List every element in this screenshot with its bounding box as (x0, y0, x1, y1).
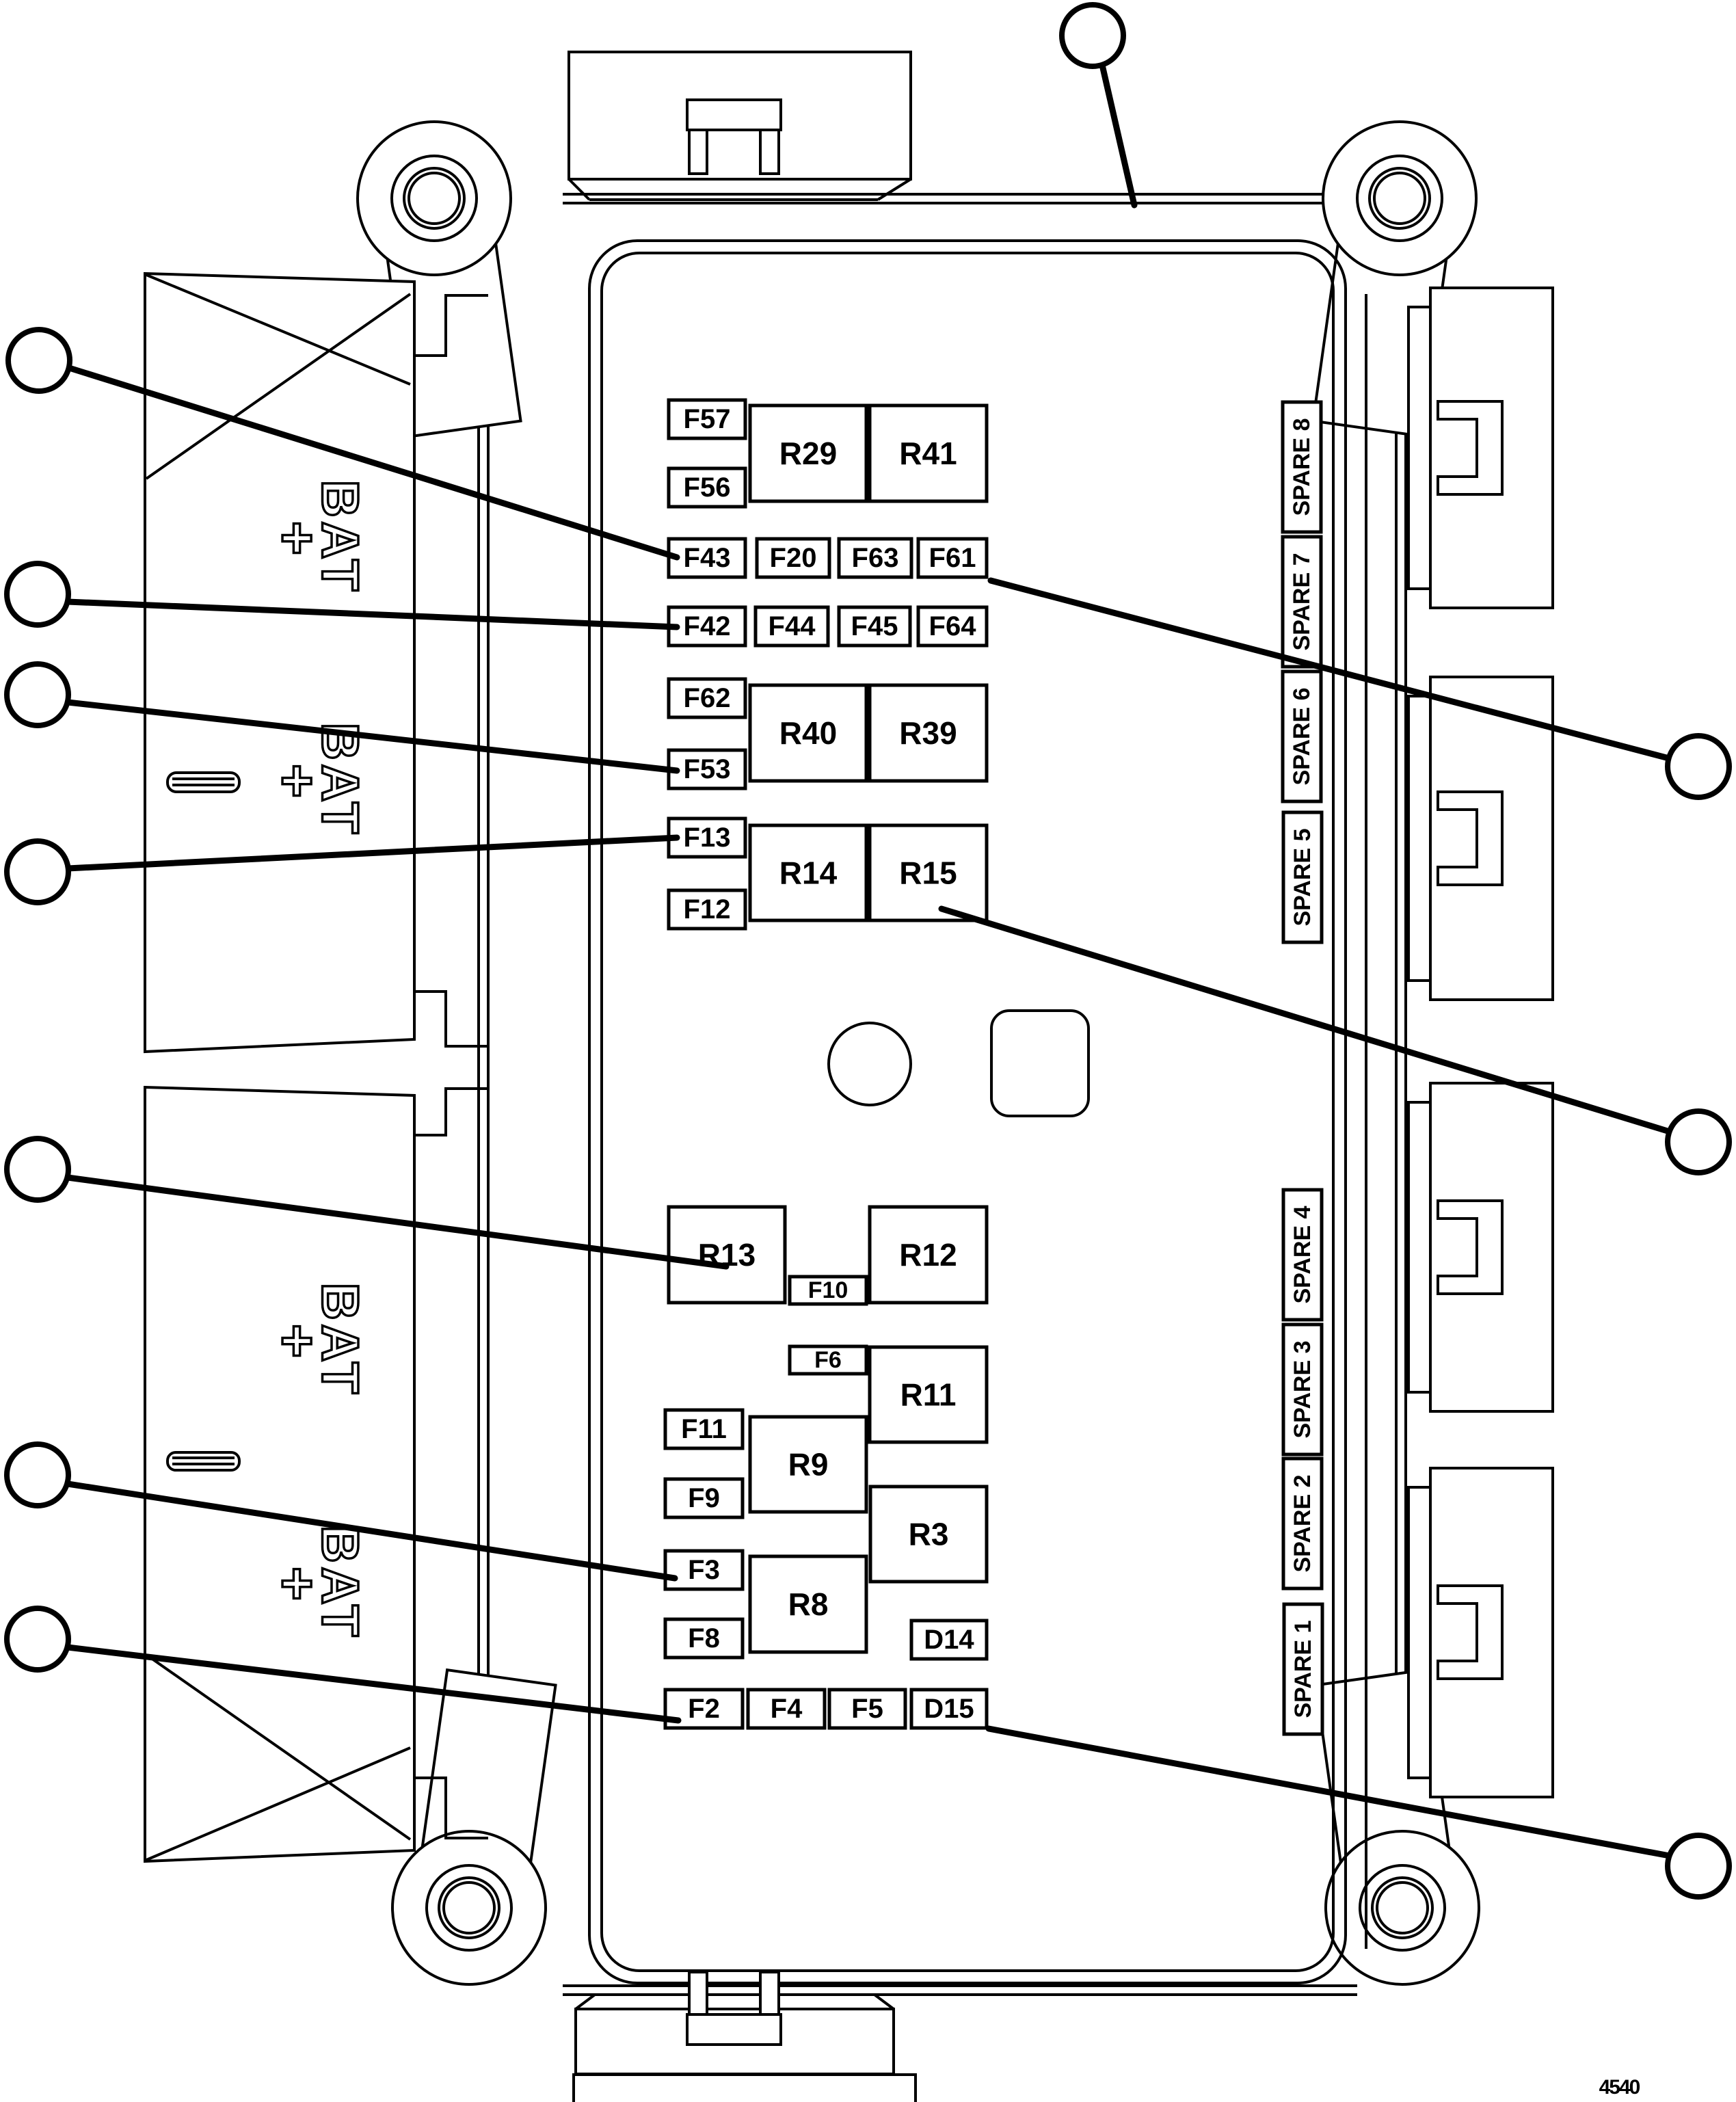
panel-hole-square (991, 1011, 1089, 1116)
relay-r12: R12 (870, 1207, 987, 1303)
diode-label: D14 (924, 1625, 974, 1655)
panel-hole-circle (829, 1023, 911, 1105)
fuse-label: F62 (684, 683, 731, 713)
callout-circle (7, 1139, 68, 1200)
callout-10 (942, 909, 1729, 1173)
callout-leader-line (991, 581, 1669, 758)
right-connector-block-4 (1408, 1468, 1553, 1797)
fuse-f9: F9 (665, 1479, 743, 1517)
slot-icon (168, 1452, 239, 1470)
spare-label: SPARE 8 (1289, 418, 1315, 516)
spare-slot-spare-6: SPARE 6 (1283, 671, 1321, 801)
relay-r15: R15 (870, 825, 987, 920)
fuse-f8: F8 (665, 1619, 743, 1658)
relay-label: R40 (779, 715, 837, 751)
relay-label: R11 (900, 1377, 957, 1413)
spare-slot-spare-2: SPARE 2 (1283, 1459, 1322, 1588)
fuse-f3: F3 (665, 1551, 743, 1589)
relay-r29: R29 (750, 405, 866, 501)
callout-circle (7, 563, 68, 625)
fuse-f62: F62 (669, 679, 745, 717)
fuse-f57: F57 (669, 400, 745, 438)
diode-d14: D14 (911, 1621, 987, 1659)
plus-icon: + (280, 505, 317, 570)
bat-label: BAT (311, 1526, 369, 1641)
fuse-f61: F61 (918, 539, 987, 577)
spare-slot-spare-7: SPARE 7 (1283, 537, 1321, 667)
bottom-connector-clip-leg (689, 1972, 707, 2016)
fuse-f44: F44 (756, 607, 828, 646)
plus-icon: + (280, 748, 317, 812)
top-connector-clip-leg (760, 130, 779, 174)
fuse-f10: F10 (790, 1277, 866, 1304)
relay-r41: R41 (870, 405, 987, 501)
fuse-label: F9 (688, 1483, 720, 1513)
spare-label: SPARE 4 (1290, 1206, 1316, 1303)
fuse-f45: F45 (839, 607, 910, 646)
fuse-label: F53 (684, 754, 731, 784)
bat-label: BAT (311, 723, 369, 838)
relay-r13: R13 (669, 1207, 785, 1303)
spare-slot-spare-8: SPARE 8 (1283, 402, 1321, 532)
fuse-label: F13 (684, 823, 731, 853)
fuse-f12: F12 (669, 890, 745, 929)
fuse-label: F20 (770, 543, 817, 573)
fuse-label: F61 (929, 543, 976, 573)
relay-r40: R40 (750, 685, 866, 781)
diode-d15: D15 (911, 1690, 987, 1728)
relay-label: R12 (899, 1237, 957, 1273)
fuse-f13: F13 (669, 819, 745, 857)
fuse-f64: F64 (918, 607, 987, 646)
callout-circle (1062, 5, 1123, 66)
callout-circle (8, 330, 70, 391)
top-connector (569, 52, 911, 200)
callout-circle (7, 1608, 68, 1670)
relay-label: R3 (909, 1517, 949, 1552)
spare-slot-spare-5: SPARE 5 (1283, 812, 1322, 942)
relay-label: R15 (899, 855, 957, 891)
callout-circle (1668, 1835, 1729, 1897)
bottom-connector-clip (687, 2014, 781, 2045)
callout-circle (1668, 736, 1729, 797)
fuse-label: F2 (688, 1694, 720, 1724)
fuse-f43: F43 (669, 539, 745, 577)
fuse-f5: F5 (829, 1690, 905, 1728)
spare-label: SPARE 7 (1289, 553, 1315, 651)
fuse-label: F63 (852, 543, 899, 573)
plus-icon: + (280, 1551, 317, 1615)
relay-label: R39 (899, 715, 957, 751)
callout-leader-line (1102, 65, 1134, 205)
callout-circle (7, 841, 68, 903)
bat-label: BAT (311, 1283, 369, 1398)
components-layer: F57F56F43F20F63F61F42F44F45F64F62F53F13F… (665, 400, 1322, 1734)
callout-circle (7, 1444, 68, 1506)
relay-r39: R39 (870, 685, 987, 781)
fuse-f42: F42 (669, 607, 745, 646)
fuse-f56: F56 (669, 468, 745, 507)
spare-label: SPARE 3 (1290, 1341, 1316, 1439)
spare-label: SPARE 1 (1290, 1621, 1316, 1718)
spare-slot-spare-3: SPARE 3 (1283, 1325, 1322, 1454)
relay-label: R8 (788, 1586, 829, 1622)
spare-label: SPARE 2 (1290, 1475, 1316, 1573)
fuse-label: F64 (929, 611, 977, 641)
fuse-label: F5 (851, 1694, 883, 1724)
relay-r9: R9 (750, 1417, 866, 1512)
fuse-f63: F63 (839, 539, 911, 577)
relay-label: R41 (899, 436, 957, 471)
bat-label: BAT (311, 480, 369, 596)
fuse-label: F12 (684, 894, 731, 924)
spare-label: SPARE 6 (1289, 688, 1315, 786)
relay-r11: R11 (870, 1347, 987, 1442)
spare-slot-spare-1: SPARE 1 (1284, 1604, 1322, 1734)
relay-r14: R14 (750, 825, 866, 920)
spare-label: SPARE 5 (1290, 829, 1316, 927)
relay-r3: R3 (870, 1487, 987, 1582)
fuse-label: F8 (688, 1623, 720, 1653)
fuse-f6: F6 (790, 1346, 866, 1374)
fuse-label: F4 (771, 1694, 803, 1724)
figure-number: 4540 (1599, 2076, 1640, 2099)
callout-circle (7, 664, 68, 726)
relay-r8: R8 (750, 1556, 866, 1652)
fuse-f4: F4 (748, 1690, 825, 1728)
plus-icon: + (280, 1308, 317, 1372)
callout-9 (991, 581, 1729, 797)
relay-label: R29 (779, 436, 837, 471)
mounting-lug-bottom-left (392, 1670, 556, 1984)
fuse-label: F57 (684, 404, 731, 434)
fuse-label: F10 (808, 1277, 849, 1303)
relay-label: R14 (779, 855, 838, 891)
callout-circle (1668, 1111, 1729, 1173)
bottom-connector-clip-leg (760, 1972, 779, 2016)
bottom-connector-base (574, 2075, 916, 2102)
fuse-label: F11 (681, 1414, 727, 1444)
panel-center-features (829, 1011, 1089, 1116)
slot-icon (168, 773, 239, 792)
fuse-label: F44 (769, 611, 816, 641)
fuse-box-diagram-page: F57F56F43F20F63F61F42F44F45F64F62F53F13F… (0, 0, 1736, 2102)
top-connector-clip-leg (689, 130, 707, 174)
right-connector-block-3 (1408, 1083, 1553, 1411)
right-connector-block-1 (1408, 288, 1553, 608)
top-connector-clip (687, 100, 781, 130)
fuse-label: F6 (814, 1347, 842, 1373)
spare-slot-spare-4: SPARE 4 (1283, 1190, 1322, 1320)
fuse-f53: F53 (669, 750, 745, 788)
fuse-label: F43 (684, 543, 731, 573)
fuse-box-diagram: F57F56F43F20F63F61F42F44F45F64F62F53F13F… (0, 0, 1736, 2102)
callout-1 (1062, 5, 1134, 205)
relay-label: R9 (788, 1447, 829, 1482)
fuse-label: F3 (688, 1555, 720, 1585)
fuse-label: F56 (684, 473, 731, 503)
fuse-f20: F20 (757, 539, 829, 577)
fuse-f11: F11 (665, 1410, 743, 1448)
fuse-label: F42 (684, 611, 731, 641)
fuse-label: F45 (851, 611, 898, 641)
diode-label: D15 (924, 1694, 974, 1724)
bottom-connector (574, 1972, 916, 2102)
